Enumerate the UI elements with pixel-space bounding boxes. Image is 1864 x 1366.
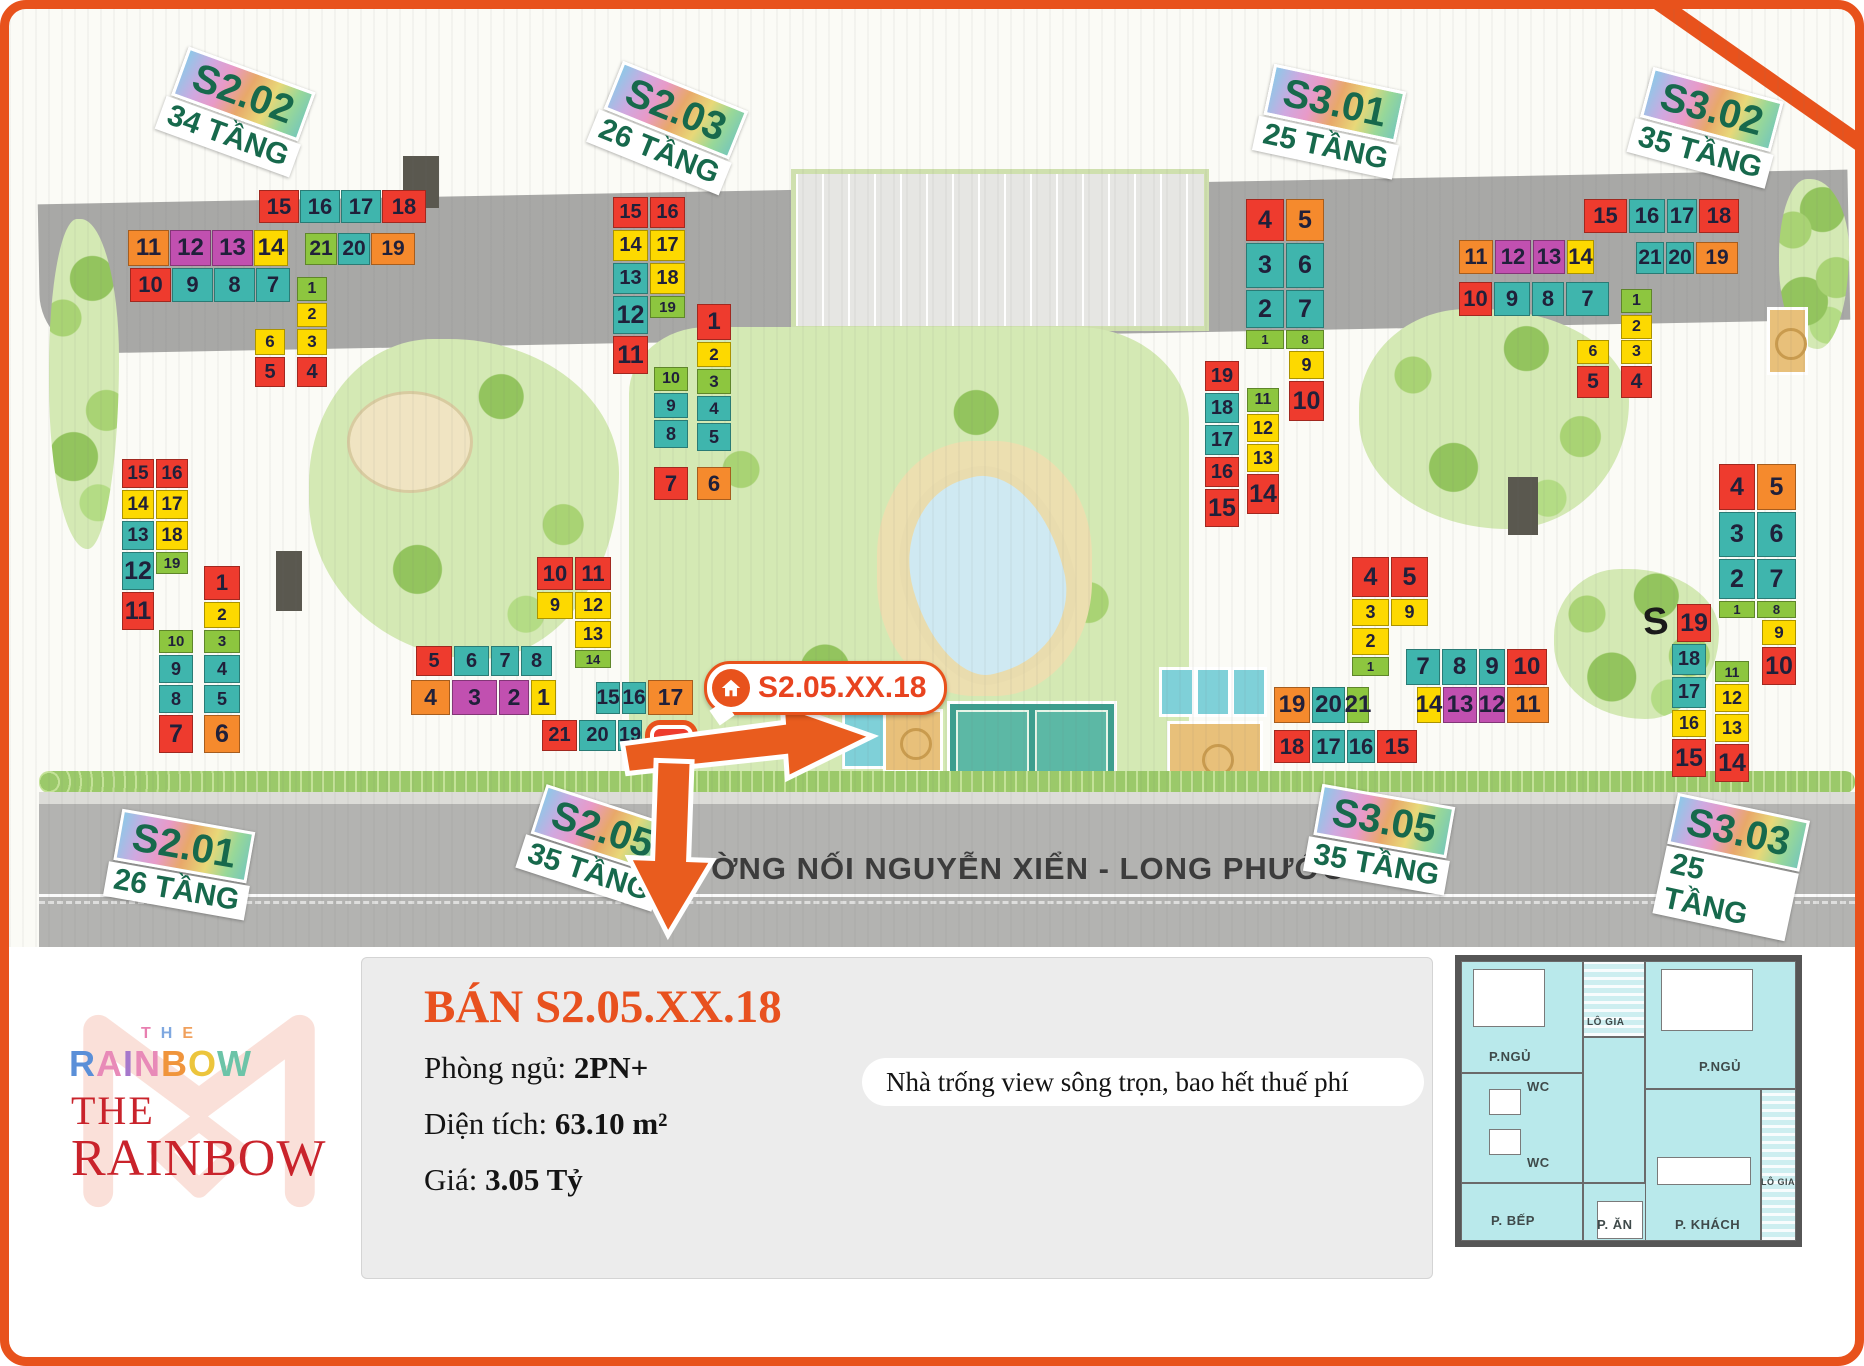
parking-lot — [791, 169, 1209, 331]
unit-cell-s3_02-13[interactable]: 13 — [1533, 240, 1565, 274]
unit-cell-s2_03-8[interactable]: 8 — [654, 420, 688, 448]
unit-cell-s2_03-12[interactable]: 12 — [613, 296, 648, 334]
logo-the-small: THE — [141, 1025, 203, 1043]
unit-cell-s3_05-9[interactable]: 9 — [1391, 599, 1428, 626]
unit-cell-s3_02-5[interactable]: 5 — [1577, 366, 1609, 398]
unit-cell-s3_01-13[interactable]: 13 — [1247, 444, 1279, 472]
logo-the: THE — [71, 1087, 155, 1134]
unit-cell-s3_05-9[interactable]: 9 — [1479, 649, 1505, 685]
unit-cell-s3_03-13[interactable]: 13 — [1715, 714, 1749, 742]
unit-cell-s2_01-19[interactable]: 19 — [156, 552, 188, 574]
unit-callout-label: S2.05.XX.18 — [758, 671, 926, 705]
unit-cell-s2_05-4[interactable]: 4 — [411, 680, 450, 715]
unit-cell-s2_05-7[interactable]: 7 — [491, 646, 519, 676]
unit-cell-s2_05-9[interactable]: 9 — [537, 592, 573, 619]
listing-graphic: ĐƯỜNG NỐI NGUYỄN XIỂN - LONG PHƯỚC S S2.… — [0, 0, 1864, 1366]
unit-cell-s3_05-19[interactable]: 19 — [1274, 687, 1310, 723]
unit-cell-s3_03-18[interactable]: 18 — [1672, 644, 1706, 675]
unit-cell-s3_01-2[interactable]: 2 — [1246, 290, 1284, 328]
building-label-s3_01: S3.0125 TẦNG — [1252, 63, 1410, 179]
unit-cell-s2_03-16[interactable]: 16 — [650, 197, 685, 228]
map-letter-fragment: S — [1641, 600, 1671, 645]
unit-cell-s2_01-5[interactable]: 5 — [204, 685, 240, 713]
service-structure — [1508, 477, 1538, 535]
unit-cell-s2_01-15[interactable]: 15 — [122, 459, 154, 488]
unit-cell-s3_02-15[interactable]: 15 — [1584, 199, 1627, 233]
unit-cell-s2_02-8[interactable]: 8 — [214, 268, 255, 302]
unit-cell-s3_03-8[interactable]: 8 — [1757, 601, 1796, 618]
info-section: THE RAINBOW THE RAINBOW BÁN S2.05.XX.18 … — [9, 947, 1855, 1357]
unit-cell-s2_03-15[interactable]: 15 — [613, 197, 648, 228]
basketball-court — [883, 709, 943, 773]
unit-cell-s2_01-16[interactable]: 16 — [156, 459, 188, 488]
unit-cell-s2_03-9[interactable]: 9 — [654, 393, 688, 418]
unit-cell-s3_05-12[interactable]: 12 — [1479, 687, 1505, 723]
unit-cell-s3_02-1[interactable]: 1 — [1621, 289, 1652, 313]
unit-cell-s3_03-17[interactable]: 17 — [1672, 677, 1706, 708]
unit-cell-s2_02-18[interactable]: 18 — [382, 190, 426, 223]
unit-cell-s3_02-10[interactable]: 10 — [1459, 282, 1492, 316]
unit-cell-s2_05-13[interactable]: 13 — [575, 621, 611, 648]
unit-cell-s2_01-1[interactable]: 1 — [204, 566, 240, 600]
unit-cell-s3_03-7[interactable]: 7 — [1757, 559, 1796, 599]
unit-cell-s3_05-18[interactable]: 18 — [1274, 730, 1310, 763]
unit-cell-s2_03-7[interactable]: 7 — [654, 467, 688, 500]
unit-cell-s2_05-15[interactable]: 15 — [596, 682, 620, 714]
unit-cell-s3_05-3[interactable]: 3 — [1352, 599, 1389, 626]
unit-cell-s2_03-17[interactable]: 17 — [650, 230, 685, 261]
field-area: Diện tích: 63.10 m² — [424, 1106, 667, 1142]
roadside-bushes — [39, 771, 1855, 793]
unit-cell-s2_05-20[interactable]: 20 — [579, 720, 616, 751]
building-label-s2_02: S2.0234 TẦNG — [155, 45, 319, 177]
unit-cell-s3_02-17[interactable]: 17 — [1667, 199, 1697, 233]
unit-cell-s3_05-8[interactable]: 8 — [1442, 649, 1477, 685]
unit-cell-s3_02-14[interactable]: 14 — [1567, 240, 1594, 274]
unit-cell-s2_02-2[interactable]: 2 — [297, 303, 327, 327]
field-bedrooms: Phòng ngủ: 2PN+ — [424, 1050, 648, 1086]
unit-cell-s2_01-9[interactable]: 9 — [159, 655, 193, 683]
unit-cell-s3_03-1[interactable]: 1 — [1719, 601, 1755, 618]
unit-cell-s2_02-6[interactable]: 6 — [255, 329, 285, 355]
unit-cell-s3_02-6[interactable]: 6 — [1577, 340, 1609, 364]
unit-cell-s2_02-10[interactable]: 10 — [130, 268, 171, 302]
unit-cell-s3_02-18[interactable]: 18 — [1699, 199, 1739, 233]
unit-cell-s3_02-16[interactable]: 16 — [1629, 199, 1665, 233]
unit-cell-s3_02-9[interactable]: 9 — [1494, 282, 1530, 316]
unit-cell-s3_03-9[interactable]: 9 — [1762, 620, 1796, 645]
listing-panel: BÁN S2.05.XX.18 Phòng ngủ: 2PN+ Diện tíc… — [361, 957, 1433, 1279]
home-icon — [712, 669, 750, 707]
unit-cell-s3_05-1[interactable]: 1 — [1352, 657, 1389, 676]
unit-cell-s2_01-8[interactable]: 8 — [159, 685, 193, 713]
sport-court — [1231, 667, 1267, 717]
unit-cell-s2_03-13[interactable]: 13 — [613, 263, 648, 294]
unit-cell-s3_02-8[interactable]: 8 — [1532, 282, 1564, 316]
listing-note: Nhà trống view sông trọn, bao hết thuế p… — [862, 1058, 1424, 1106]
road-name-label: ĐƯỜNG NỐI NGUYỄN XIỂN - LONG PHƯỚC — [661, 851, 1345, 887]
unit-cell-s3_05-10[interactable]: 10 — [1507, 649, 1547, 685]
unit-cell-s3_01-4[interactable]: 4 — [1246, 199, 1284, 241]
unit-cell-s3_02-2[interactable]: 2 — [1621, 315, 1652, 339]
unit-cell-s2_01-17[interactable]: 17 — [156, 490, 188, 519]
unit-cell-s3_02-7[interactable]: 7 — [1566, 282, 1609, 316]
unit-cell-s3_05-2[interactable]: 2 — [1352, 628, 1389, 655]
unit-cell-s2_02-15[interactable]: 15 — [259, 190, 299, 223]
floorplan-hallway — [1583, 1037, 1645, 1183]
unit-cell-s3_03-16[interactable]: 16 — [1672, 710, 1706, 737]
unit-cell-s2_05-8[interactable]: 8 — [521, 646, 552, 676]
unit-cell-s2_03-3[interactable]: 3 — [697, 369, 731, 394]
logo-rainbow-colored: RAINBOW — [69, 1043, 252, 1085]
logo-rainbow: RAINBOW — [71, 1129, 326, 1188]
unit-cell-s2_01-18[interactable]: 18 — [156, 521, 188, 550]
unit-cell-s3_01-18[interactable]: 18 — [1205, 393, 1239, 423]
unit-cell-s2_01-2[interactable]: 2 — [204, 602, 240, 628]
unit-cell-s2_02-19[interactable]: 19 — [371, 233, 415, 265]
unit-cell-s3_01-17[interactable]: 17 — [1205, 425, 1239, 455]
unit-cell-s3_05-17[interactable]: 17 — [1312, 730, 1345, 763]
unit-cell-s2_05-1[interactable]: 1 — [531, 680, 556, 715]
floorplan-room-kitchen — [1461, 1183, 1583, 1241]
floorplan-image: P.NGỦ LÔ GIA P.NGỦ WC WC P. BẾP P. ĂN P.… — [1455, 955, 1802, 1247]
unit-cell-s3_01-12[interactable]: 12 — [1247, 414, 1279, 442]
unit-cell-s2_02-20[interactable]: 20 — [338, 233, 370, 265]
unit-cell-s3_03-10[interactable]: 10 — [1762, 647, 1796, 685]
brand-logo: THE RAINBOW THE RAINBOW — [49, 947, 349, 1257]
unit-cell-s3_02-4[interactable]: 4 — [1621, 366, 1652, 398]
sport-court — [1195, 667, 1231, 717]
unit-cell-s3_03-5[interactable]: 5 — [1757, 464, 1796, 510]
listing-title: BÁN S2.05.XX.18 — [424, 980, 782, 1034]
unit-cell-s3_02-3[interactable]: 3 — [1621, 340, 1652, 364]
unit-cell-s2_01-10[interactable]: 10 — [159, 630, 193, 653]
unit-cell-s2_01-6[interactable]: 6 — [204, 715, 240, 753]
unit-cell-s2_02-9[interactable]: 9 — [172, 268, 213, 302]
unit-cell-s2_03-18[interactable]: 18 — [650, 263, 685, 294]
unit-cell-s3_02-11[interactable]: 11 — [1459, 240, 1493, 274]
unit-cell-s2_03-14[interactable]: 14 — [613, 230, 648, 261]
sport-court — [1159, 667, 1195, 717]
unit-cell-s2_05-2[interactable]: 2 — [499, 680, 529, 715]
unit-cell-s2_01-3[interactable]: 3 — [204, 630, 240, 653]
unit-cell-s2_02-1[interactable]: 1 — [297, 277, 327, 301]
unit-cell-s3_05-21[interactable]: 21 — [1347, 687, 1369, 723]
unit-cell-s3_05-15[interactable]: 15 — [1377, 730, 1417, 763]
unit-cell-s2_03-6[interactable]: 6 — [697, 467, 731, 500]
unit-cell-s3_01-16[interactable]: 16 — [1205, 457, 1239, 487]
playground — [347, 391, 473, 493]
unit-cell-s2_02-21[interactable]: 21 — [305, 233, 337, 265]
service-structure — [276, 551, 302, 611]
unit-cell-s3_03-11[interactable]: 11 — [1715, 661, 1749, 682]
unit-cell-s3_01-15[interactable]: 15 — [1205, 489, 1239, 527]
unit-cell-s2_05-11[interactable]: 11 — [575, 557, 611, 590]
arrow-down-icon — [622, 755, 720, 942]
unit-callout[interactable]: S2.05.XX.18 — [704, 661, 947, 715]
map-canvas[interactable]: ĐƯỜNG NỐI NGUYỄN XIỂN - LONG PHƯỚC S S2.… — [9, 9, 1855, 947]
unit-cell-s3_05-7[interactable]: 7 — [1406, 649, 1440, 685]
unit-cell-s2_03-4[interactable]: 4 — [697, 396, 731, 421]
unit-cell-s2_05-12[interactable]: 12 — [575, 592, 611, 619]
unit-cell-s3_01-3[interactable]: 3 — [1246, 243, 1284, 288]
unit-cell-s3_05-14[interactable]: 14 — [1417, 687, 1441, 723]
unit-cell-s2_03-19[interactable]: 19 — [650, 296, 685, 318]
unit-cell-s3_01-6[interactable]: 6 — [1286, 243, 1324, 288]
unit-cell-s2_01-11[interactable]: 11 — [122, 592, 154, 630]
unit-cell-s3_01-8[interactable]: 8 — [1286, 330, 1324, 349]
unit-cell-s3_02-19[interactable]: 19 — [1696, 242, 1738, 274]
unit-cell-s3_01-9[interactable]: 9 — [1289, 351, 1324, 379]
unit-cell-s2_02-16[interactable]: 16 — [300, 190, 340, 223]
unit-cell-s3_02-20[interactable]: 20 — [1666, 242, 1694, 274]
unit-cell-s2_05-16[interactable]: 16 — [622, 682, 646, 714]
unit-cell-s2_05-14[interactable]: 14 — [575, 650, 611, 668]
unit-cell-s2_02-12[interactable]: 12 — [170, 230, 211, 266]
unit-cell-s3_05-20[interactable]: 20 — [1312, 687, 1345, 723]
unit-cell-s2_05-6[interactable]: 6 — [454, 646, 489, 676]
unit-cell-s3_01-7[interactable]: 7 — [1286, 290, 1324, 328]
floorplan-room-wc — [1461, 1073, 1583, 1183]
unit-cell-s2_02-11[interactable]: 11 — [128, 230, 169, 266]
unit-cell-s2_02-4[interactable]: 4 — [297, 357, 327, 387]
building-label-s2_03: S2.0326 TẦNG — [586, 59, 751, 195]
unit-cell-s2_01-4[interactable]: 4 — [204, 655, 240, 683]
unit-cell-s3_03-12[interactable]: 12 — [1715, 684, 1749, 712]
unit-cell-s2_01-12[interactable]: 12 — [122, 552, 154, 590]
unit-cell-s3_03-19[interactable]: 19 — [1677, 604, 1711, 642]
unit-cell-s2_03-10[interactable]: 10 — [654, 367, 688, 391]
unit-cell-s3_05-5[interactable]: 5 — [1391, 557, 1428, 597]
unit-cell-s2_03-11[interactable]: 11 — [613, 336, 648, 374]
unit-cell-s2_03-5[interactable]: 5 — [697, 423, 731, 451]
tree-strip-left — [49, 219, 119, 549]
unit-cell-s3_03-14[interactable]: 14 — [1715, 744, 1749, 782]
unit-cell-s2_02-3[interactable]: 3 — [297, 329, 327, 355]
unit-cell-s3_02-21[interactable]: 21 — [1636, 242, 1664, 274]
unit-cell-s3_01-11[interactable]: 11 — [1247, 388, 1279, 412]
unit-cell-s2_05-21[interactable]: 21 — [542, 720, 577, 751]
unit-cell-s3_05-13[interactable]: 13 — [1443, 687, 1477, 723]
unit-cell-s2_03-1[interactable]: 1 — [697, 304, 731, 340]
unit-cell-s2_03-2[interactable]: 2 — [697, 342, 731, 367]
unit-cell-s2_05-10[interactable]: 10 — [537, 557, 573, 590]
unit-cell-s2_05-5[interactable]: 5 — [416, 646, 452, 676]
unit-cell-s2_02-17[interactable]: 17 — [341, 190, 381, 223]
unit-cell-s2_05-3[interactable]: 3 — [452, 680, 497, 715]
unit-cell-s3_05-4[interactable]: 4 — [1352, 557, 1389, 597]
unit-cell-s3_01-19[interactable]: 19 — [1205, 361, 1239, 391]
unit-cell-s2_02-5[interactable]: 5 — [255, 357, 285, 387]
unit-cell-s2_01-7[interactable]: 7 — [159, 715, 193, 753]
unit-cell-s2_02-7[interactable]: 7 — [256, 268, 290, 302]
unit-cell-s3_05-16[interactable]: 16 — [1347, 730, 1375, 763]
unit-cell-s3_01-5[interactable]: 5 — [1286, 199, 1324, 241]
unit-cell-s2_01-14[interactable]: 14 — [122, 490, 154, 519]
unit-cell-s3_03-6[interactable]: 6 — [1757, 512, 1796, 557]
field-price: Giá: 3.05 Tỷ — [424, 1162, 583, 1198]
unit-cell-s3_03-3[interactable]: 3 — [1719, 512, 1755, 557]
unit-cell-s3_03-4[interactable]: 4 — [1719, 464, 1755, 510]
unit-cell-s3_02-12[interactable]: 12 — [1495, 240, 1531, 274]
floorplan-room-loggia2 — [1761, 1089, 1796, 1241]
unit-cell-s3_03-15[interactable]: 15 — [1672, 739, 1706, 777]
unit-cell-s3_01-10[interactable]: 10 — [1289, 381, 1324, 421]
unit-cell-s2_02-13[interactable]: 13 — [212, 230, 253, 266]
unit-cell-s2_02-14[interactable]: 14 — [254, 230, 288, 266]
volleyball-court — [1767, 307, 1808, 375]
unit-cell-s3_01-1[interactable]: 1 — [1246, 330, 1284, 349]
unit-cell-s2_01-13[interactable]: 13 — [122, 521, 154, 550]
unit-cell-s3_05-11[interactable]: 11 — [1507, 687, 1549, 723]
unit-cell-s3_01-14[interactable]: 14 — [1247, 474, 1279, 514]
unit-cell-s3_03-2[interactable]: 2 — [1719, 559, 1755, 599]
